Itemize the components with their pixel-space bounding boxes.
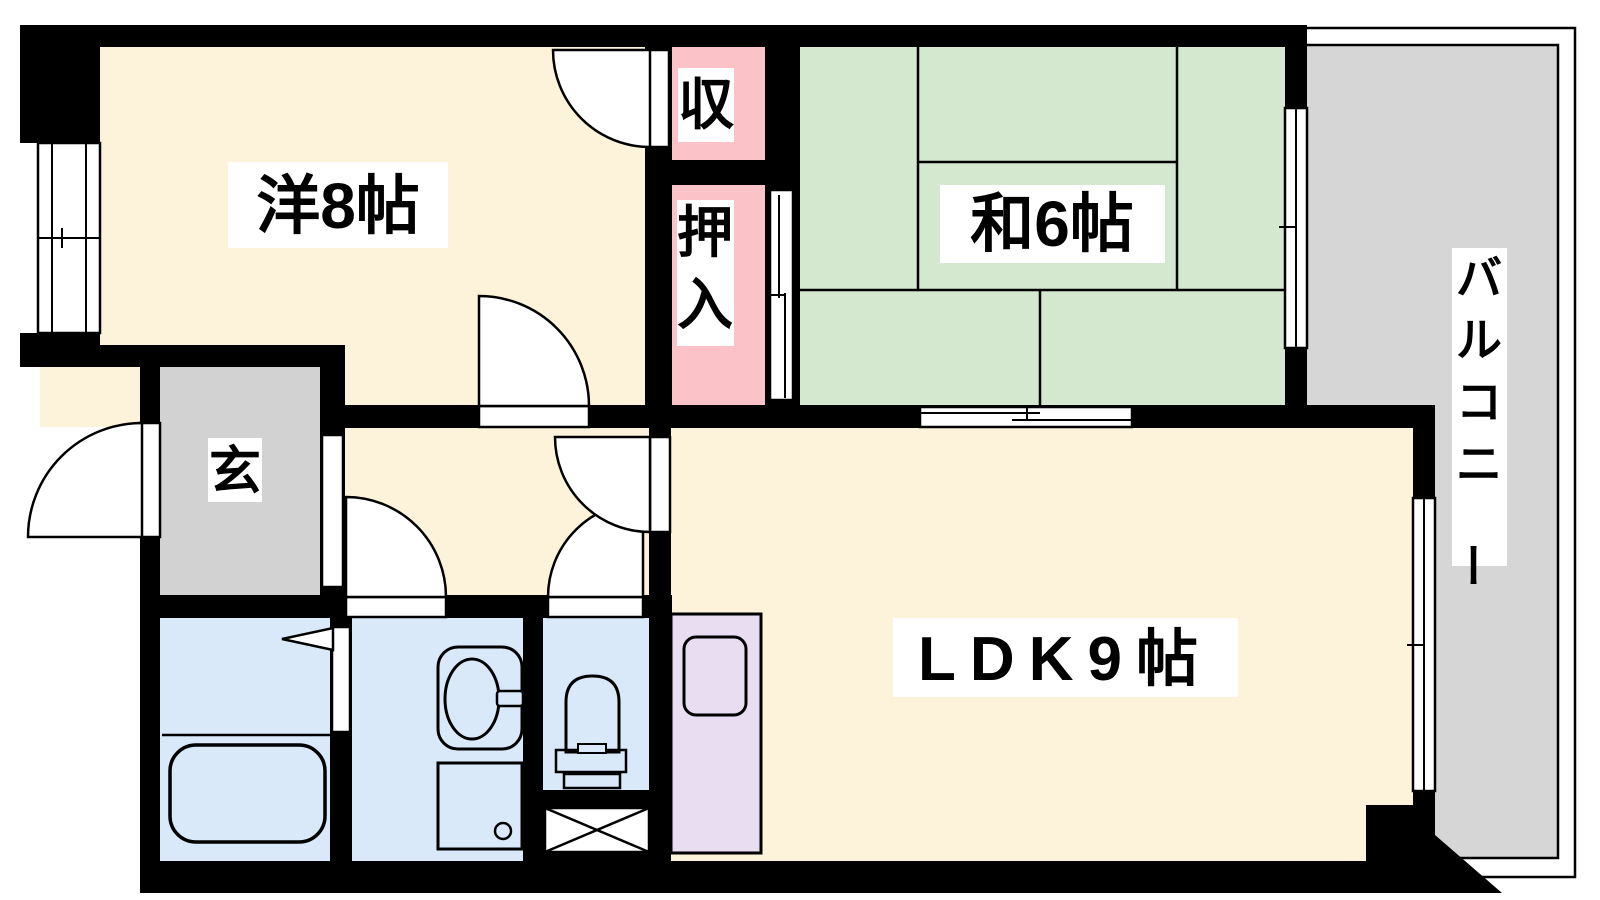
storage-door-panel — [649, 50, 669, 147]
japanese-room-label: 和6帖 — [970, 188, 1134, 260]
toilet-door-panel — [548, 597, 643, 617]
wall-corner-step — [1366, 805, 1435, 861]
western-room-label: 洋8帖 — [256, 170, 420, 242]
washroom-floor — [340, 597, 530, 875]
entrance-hall-opening — [322, 435, 343, 587]
washroom-door-panel — [346, 597, 446, 617]
wall-segment — [140, 861, 1435, 893]
sliding-window-icon — [38, 143, 100, 333]
wall-pillar — [20, 25, 100, 143]
ldk-door-panel — [650, 437, 670, 532]
entrance-label: 玄 — [209, 443, 261, 501]
floor-plan-page: 洋8帖 収 押入 和6帖 玄 LDK9帖 バルコニー — [0, 0, 1600, 900]
sliding-door-icon — [920, 407, 1132, 427]
ldk-label: LDK9帖 — [918, 625, 1212, 694]
kitchen-counter — [671, 614, 761, 853]
door-swing-arc-icon — [28, 423, 142, 537]
bathroom-door-panel — [332, 627, 350, 732]
toilet-room-floor — [530, 597, 660, 810]
wall-segment — [140, 595, 160, 893]
storage-label: 収 — [678, 73, 734, 136]
wall-segment — [20, 345, 345, 367]
floor-plan-drawing: 洋8帖 収 押入 和6帖 玄 LDK9帖 バルコニー — [0, 0, 1600, 900]
western-room-door-panel — [479, 406, 589, 427]
wall-segment — [20, 25, 1307, 47]
pipe-space-cross-icon — [545, 808, 649, 852]
fusuma-sliding-door-icon — [770, 190, 793, 400]
